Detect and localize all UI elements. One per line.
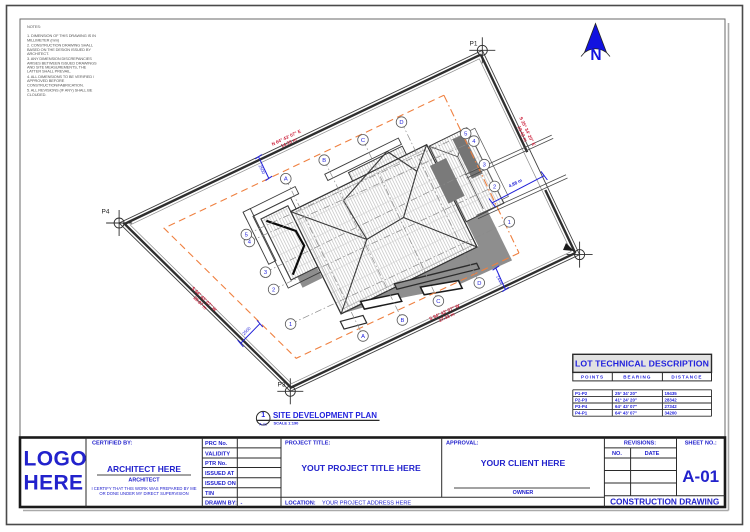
svg-text:C: C [436, 299, 440, 305]
svg-text:1: 1 [289, 322, 292, 328]
svg-text:SHEET NO.:: SHEET NO.: [685, 441, 717, 447]
svg-text:CERTIFIED BY:: CERTIFIED BY: [92, 441, 132, 447]
svg-text:YOUR PROJECT ADDRESS HERE: YOUR PROJECT ADDRESS HERE [322, 500, 411, 506]
svg-text:P3-P4: P3-P4 [575, 404, 588, 409]
svg-text:19435: 19435 [665, 391, 678, 396]
svg-text:A: A [361, 334, 365, 340]
svg-text:P1: P1 [470, 41, 478, 48]
svg-text:1: 1 [508, 220, 511, 226]
svg-text:LOGO: LOGO [24, 448, 87, 471]
svg-text:64° 43' 07": 64° 43' 07" [615, 404, 637, 409]
svg-text:A-01: A-01 [682, 467, 719, 486]
svg-text:OR DONE UNDER MY DIRECT SUPERV: OR DONE UNDER MY DIRECT SUPERVISION [99, 491, 188, 496]
svg-text:D: D [399, 120, 403, 126]
svg-text:2: 2 [493, 184, 496, 190]
svg-text:N: N [590, 47, 601, 64]
svg-text:YOUT PROJECT TITLE HERE: YOUT PROJECT TITLE HERE [301, 463, 421, 473]
svg-text:CONSTRUCTION DRAWING: CONSTRUCTION DRAWING [610, 497, 719, 507]
svg-text:27342: 27342 [665, 404, 678, 409]
svg-text:P2-P3: P2-P3 [575, 397, 588, 402]
svg-text:P4-P1: P4-P1 [575, 411, 588, 416]
svg-text:C: C [361, 138, 365, 144]
svg-text:DISTANCE: DISTANCE [671, 375, 702, 380]
svg-text:ISSUED AT: ISSUED AT [205, 471, 235, 477]
svg-text:NO.: NO. [612, 451, 622, 457]
svg-text:A-01: A-01 [259, 422, 267, 426]
svg-text:PROJECT TITLE:: PROJECT TITLE: [285, 441, 331, 447]
svg-text:5: 5 [245, 233, 248, 239]
svg-text:A: A [284, 177, 288, 183]
svg-text:POINTS: POINTS [581, 375, 604, 380]
svg-text:64° 43' 07": 64° 43' 07" [615, 411, 637, 416]
svg-text:ARCHITECT.: ARCHITECT. [27, 51, 49, 56]
svg-text:LATTER SHALL PREVAIL.: LATTER SHALL PREVAIL. [27, 69, 71, 74]
svg-text:2: 2 [272, 287, 275, 293]
svg-text:25° 34' 20": 25° 34' 20" [615, 391, 637, 396]
svg-text:APPROVAL:: APPROVAL: [446, 441, 479, 447]
svg-text:LOCATION:: LOCATION: [285, 500, 316, 506]
svg-text:DATE: DATE [645, 451, 660, 457]
svg-text:TIN: TIN [205, 491, 214, 497]
svg-text:5: 5 [464, 132, 467, 138]
svg-text:REVISIONS:: REVISIONS: [624, 441, 656, 447]
svg-text:BEARING: BEARING [623, 375, 651, 380]
svg-text:SCALE 1:190: SCALE 1:190 [274, 421, 300, 426]
svg-text:D: D [477, 281, 481, 287]
svg-text:ISSUED ON: ISSUED ON [205, 481, 236, 487]
svg-text:PTR No.: PTR No. [205, 461, 227, 467]
svg-text:41° 24' 20": 41° 24' 20" [615, 397, 637, 402]
svg-text:LOT TECHNICAL DESCRIPTION: LOT TECHNICAL DESCRIPTION [575, 359, 709, 369]
svg-text:HERE: HERE [24, 472, 84, 495]
svg-text:ARCHITECT: ARCHITECT [128, 478, 160, 484]
svg-text:OWNER: OWNER [513, 490, 534, 496]
svg-text:B: B [400, 318, 404, 324]
svg-text:P4: P4 [102, 209, 110, 216]
svg-text:34200: 34200 [665, 411, 678, 416]
svg-text:SITE DEVELOPMENT PLAN: SITE DEVELOPMENT PLAN [273, 410, 377, 420]
svg-text:YOUR CLIENT HERE: YOUR CLIENT HERE [481, 458, 566, 468]
svg-text:1: 1 [261, 412, 265, 419]
svg-text:CONSTRUCTION/FABRICATION.: CONSTRUCTION/FABRICATION. [27, 82, 84, 87]
svg-text:P1-P2: P1-P2 [575, 391, 588, 396]
svg-text:B: B [322, 158, 326, 164]
svg-text:3: 3 [483, 163, 486, 169]
svg-text:DRAWN BY:: DRAWN BY: [205, 501, 237, 507]
svg-text:PRC No.: PRC No. [205, 441, 228, 447]
svg-text:P3: P3 [278, 382, 286, 389]
svg-text:ARCHITECT HERE: ARCHITECT HERE [107, 464, 181, 474]
svg-text:28342: 28342 [665, 397, 678, 402]
svg-text:VALIDITY: VALIDITY [205, 451, 230, 457]
svg-text:-: - [241, 501, 243, 507]
svg-text:CLOUDED.: CLOUDED. [27, 92, 46, 97]
svg-text:3: 3 [264, 270, 267, 276]
svg-text:NOTES:: NOTES: [27, 24, 41, 29]
